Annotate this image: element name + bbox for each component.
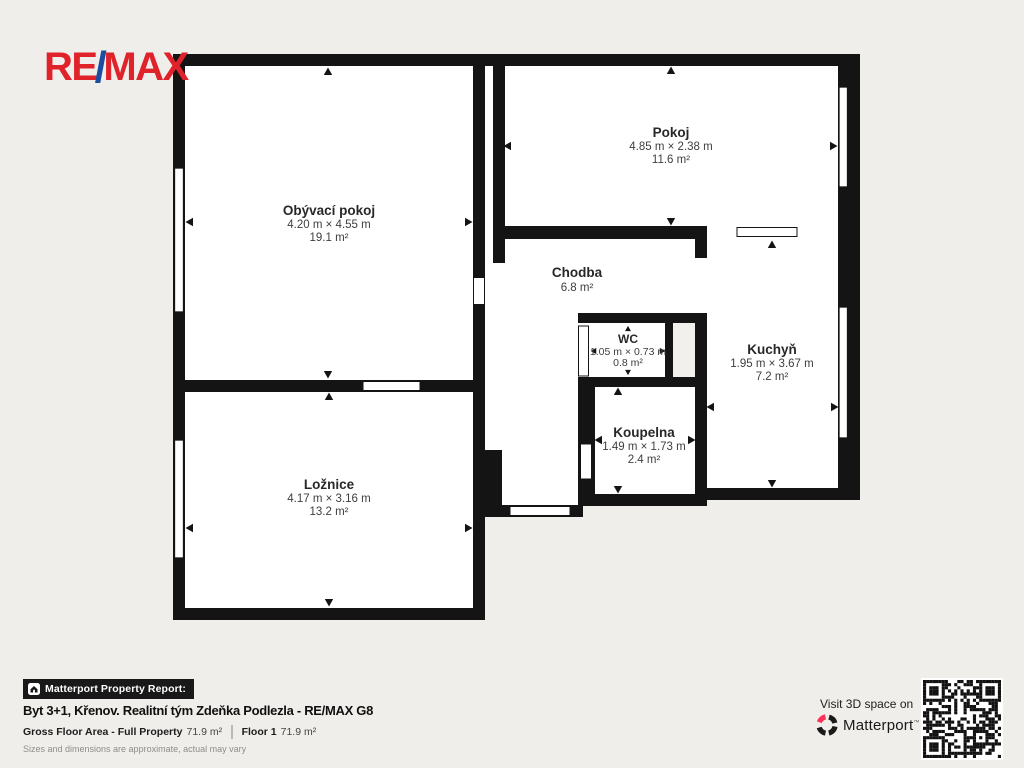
room-name: Chodba [552,265,603,280]
area-summary: Gross Floor Area - Full Property 71.9 m²… [23,725,316,739]
matterport-house-icon [28,683,40,695]
window-bedroom [175,440,184,558]
gfa-value: 71.9 m² [186,726,222,738]
room-name: Koupelna [613,425,675,440]
room-dimensions: 4.85 m × 2.38 m [629,141,712,153]
room-area: 6.8 m² [561,282,594,294]
gfa-label: Gross Floor Area - Full Property [23,726,182,738]
room-name: Kuchyň [747,342,797,357]
door-living-bedroom [363,382,420,391]
qr-code [921,678,1003,760]
listing-title: Byt 3+1, Křenov. Realitní tým Zdeňka Pod… [23,703,373,718]
door-bathroom [581,444,592,479]
floor-plan: Obývací pokoj 4.20 m × 4.55 m 19.1 m² Po… [0,0,1024,768]
room-area: 2.4 m² [628,454,661,466]
room-area: 7.2 m² [756,371,789,383]
window-kitchen [839,307,848,438]
report-bar: Matterport Property Report: [23,679,194,699]
trademark-symbol: ™ [913,720,919,726]
floor-label: Floor 1 [242,726,277,738]
page: RE/MAX [0,0,1024,768]
room-area: 11.6 m² [652,154,690,166]
floor-value: 71.9 m² [281,726,317,738]
disclaimer: Sizes and dimensions are approximate, ac… [23,744,246,754]
matterport-wordmark: Matterport™ [843,717,920,734]
room-area: 0.8 m² [613,357,643,369]
remax-logo-max: MAX [103,45,187,89]
matterport-logo-icon [815,713,839,737]
room-dimensions: 1.49 m × 1.73 m [602,441,685,453]
room-name: Ložnice [304,477,355,492]
utility-shaft [673,323,695,377]
apartment-footprint [173,54,860,620]
room-dimensions: 4.17 m × 3.16 m [287,493,370,505]
room-name: Pokoj [653,125,690,140]
visit-3d-label: Visit 3D space on [820,697,913,711]
window-living-room [175,168,184,312]
room-dimensions: 1.95 m × 3.67 m [730,358,813,370]
room-area: 13.2 m² [310,506,349,518]
remax-logo-slash: / [95,43,106,92]
report-bar-label: Matterport Property Report: [45,683,186,695]
door-entrance [510,507,570,516]
measure-divider [231,725,233,739]
matterport-brand: Matterport™ [815,713,920,737]
door-pokoj-kitchen [737,228,797,237]
door-living-hall [474,278,485,305]
room-name: Obývací pokoj [283,203,375,218]
remax-logo-re: RE [44,45,97,89]
door-wc [579,326,589,376]
room-area: 19.1 m² [310,232,349,244]
window-pokoj [839,87,848,187]
room-dimensions: 4.20 m × 4.55 m [287,219,370,231]
remax-logo: RE/MAX [44,44,188,88]
room-name: WC [618,332,638,346]
